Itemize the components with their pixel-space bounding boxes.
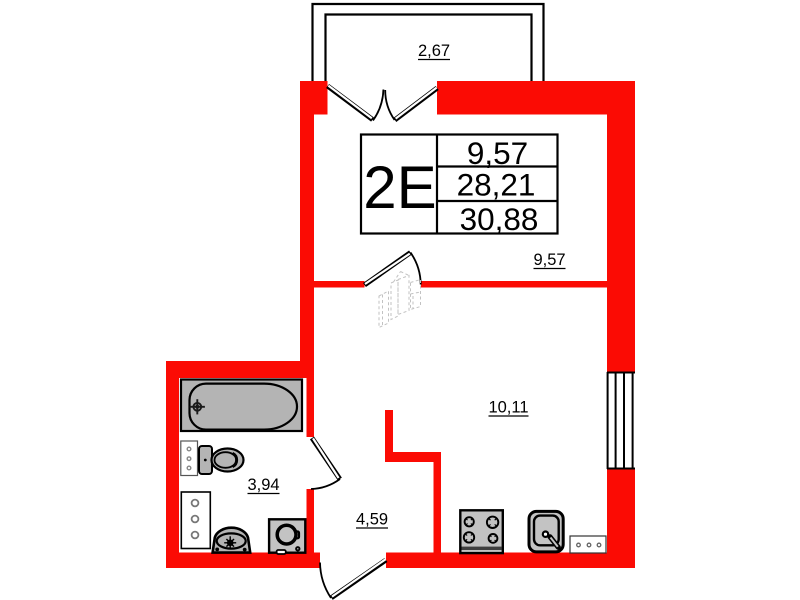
svg-text:2E: 2E [363,154,436,221]
svg-text:10,11: 10,11 [488,399,528,417]
svg-text:2,67: 2,67 [418,42,450,60]
svg-text:4,59: 4,59 [356,511,388,529]
svg-text:28,21: 28,21 [457,167,536,203]
svg-text:30,88: 30,88 [460,201,539,237]
svg-text:3,94: 3,94 [247,476,279,494]
svg-text:9,57: 9,57 [533,251,565,269]
